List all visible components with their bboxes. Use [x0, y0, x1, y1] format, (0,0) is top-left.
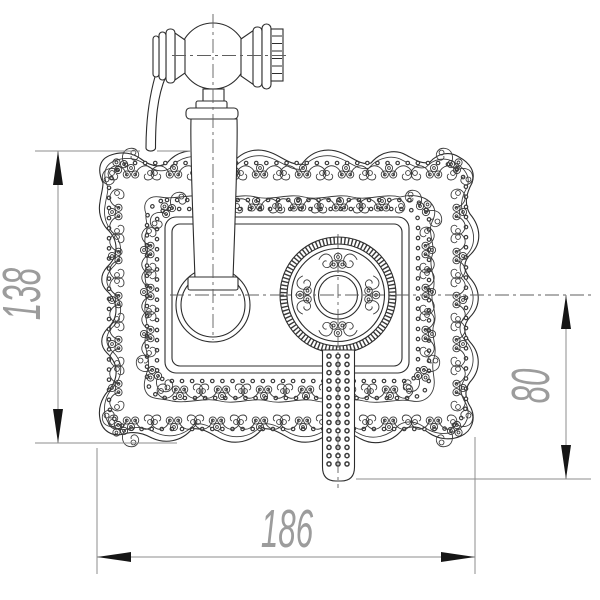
- dim-label-width: 186: [261, 499, 314, 559]
- dim-label-lever: 80: [501, 368, 561, 403]
- spray-face: [271, 29, 283, 81]
- shower-hose: [146, 70, 166, 151]
- dim-label-height: 138: [0, 268, 52, 321]
- pull-lever: [323, 350, 355, 481]
- shower-grip: [191, 119, 237, 279]
- technical-drawing-canvas: 138 186 80: [0, 0, 600, 600]
- shower-neck: [203, 89, 224, 102]
